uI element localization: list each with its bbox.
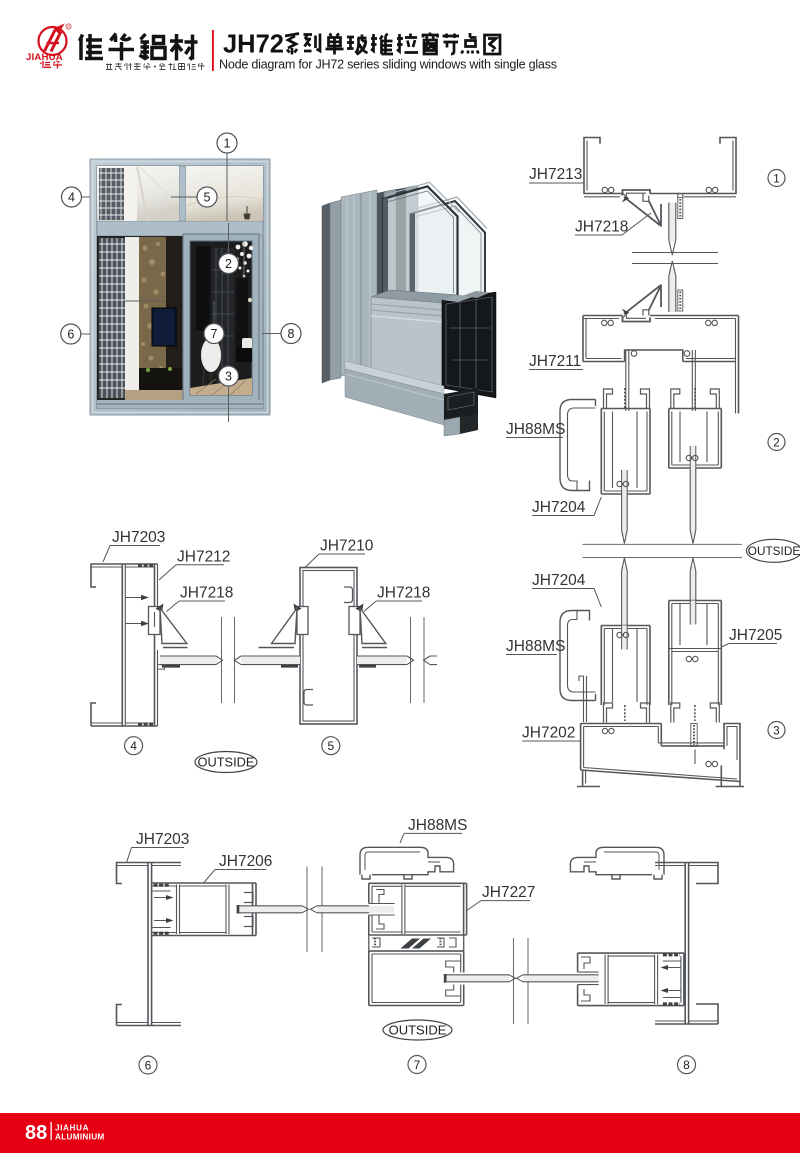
svg-text:JH7206: JH7206 [219, 853, 272, 870]
svg-text:5: 5 [327, 739, 334, 753]
svg-text:4: 4 [68, 191, 75, 205]
svg-text:4: 4 [130, 739, 137, 753]
svg-text:JH88MS: JH88MS [506, 638, 565, 655]
svg-text:8: 8 [683, 1058, 690, 1072]
svg-text:JH7212: JH7212 [177, 549, 230, 566]
svg-text:JH88MS: JH88MS [408, 817, 467, 834]
svg-text:88: 88 [25, 1122, 47, 1144]
svg-text:1: 1 [224, 137, 231, 151]
svg-text:JH7218: JH7218 [377, 585, 430, 602]
svg-text:JH7205: JH7205 [729, 627, 782, 644]
svg-text:JH7211: JH7211 [529, 353, 581, 370]
svg-text:2: 2 [773, 437, 779, 449]
svg-text:JH7202: JH7202 [522, 725, 575, 742]
svg-text:7: 7 [211, 327, 218, 341]
svg-text:ALUMINIUM: ALUMINIUM [55, 1133, 105, 1142]
svg-text:JH7204: JH7204 [532, 572, 586, 589]
svg-text:3: 3 [225, 370, 232, 384]
svg-text:JH7213: JH7213 [529, 166, 582, 183]
svg-text:3: 3 [773, 725, 779, 737]
svg-text:Node diagram for JH72 series s: Node diagram for JH72 series sliding win… [219, 58, 557, 72]
svg-text:JH7203: JH7203 [112, 529, 165, 546]
svg-text:6: 6 [145, 1059, 152, 1073]
svg-text:5: 5 [204, 191, 211, 205]
svg-text:JH7218: JH7218 [575, 219, 628, 236]
svg-text:JH88MS: JH88MS [506, 421, 565, 438]
svg-text:JH7210: JH7210 [320, 538, 374, 555]
svg-text:R: R [67, 24, 70, 29]
svg-text:8: 8 [288, 327, 295, 341]
svg-text:JH7218: JH7218 [180, 585, 233, 602]
svg-text:JH7227: JH7227 [482, 884, 535, 901]
svg-text:2: 2 [225, 257, 232, 271]
svg-text:7: 7 [414, 1058, 421, 1072]
svg-text:JH7204: JH7204 [532, 499, 586, 516]
svg-text:OUTSIDE: OUTSIDE [748, 544, 800, 558]
svg-text:OUTSIDE: OUTSIDE [198, 755, 255, 770]
svg-text:JH72: JH72 [223, 31, 284, 59]
svg-text:JH7203: JH7203 [136, 831, 189, 848]
svg-text:1: 1 [773, 173, 779, 185]
svg-text:JIAHUA: JIAHUA [55, 1124, 89, 1133]
svg-text:6: 6 [67, 328, 74, 342]
svg-text:OUTSIDE: OUTSIDE [389, 1023, 447, 1038]
